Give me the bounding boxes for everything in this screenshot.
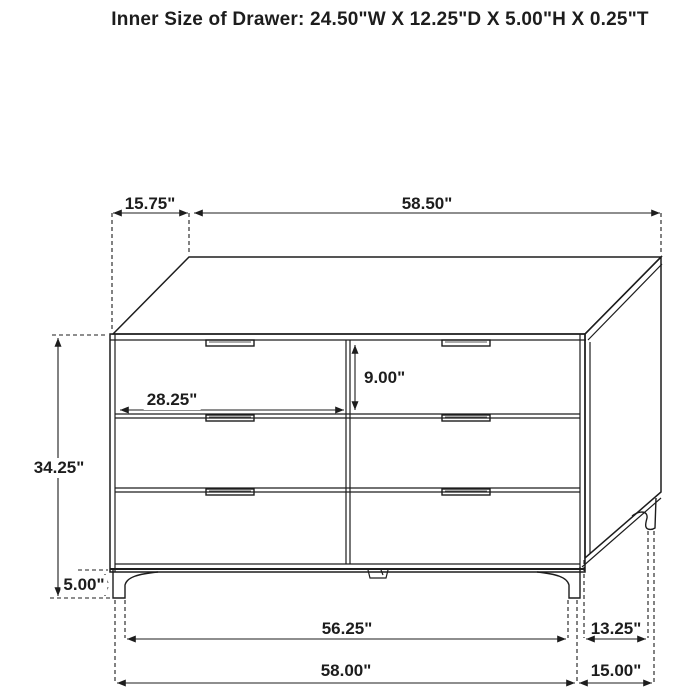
drawer-handle bbox=[206, 340, 254, 346]
rear-right-leg bbox=[632, 498, 656, 529]
dim-label-overall-height: 34.25" bbox=[31, 458, 88, 478]
drawer-handle bbox=[442, 340, 490, 346]
page-title: Inner Size of Drawer: 24.50"W X 12.25"D … bbox=[111, 9, 648, 31]
dresser-line-drawing bbox=[0, 0, 700, 700]
center-glide bbox=[368, 570, 388, 578]
dim-label-overall-width: 58.00" bbox=[321, 661, 372, 681]
dim-label-drawer-width: 28.25" bbox=[144, 390, 201, 410]
dresser-top-surface bbox=[110, 257, 662, 340]
dim-label-side-leg-span: 13.25" bbox=[591, 619, 642, 639]
dimension-diagram-page: Inner Size of Drawer: 24.50"W X 12.25"D … bbox=[0, 0, 700, 700]
dim-label-front-leg-span: 56.25" bbox=[322, 619, 373, 639]
extension-lines bbox=[50, 213, 661, 682]
dresser-legs bbox=[113, 498, 656, 598]
dim-label-top-width: 58.50" bbox=[402, 194, 453, 214]
dim-label-overall-depth: 15.00" bbox=[591, 661, 642, 681]
dresser-side-panel bbox=[582, 257, 661, 567]
dim-label-leg-height: 5.00" bbox=[60, 575, 107, 595]
dimension-arrow-lines bbox=[58, 213, 660, 683]
dresser-front-face bbox=[110, 334, 585, 572]
dim-label-top-depth: 15.75" bbox=[125, 194, 176, 214]
dresser-cabinet bbox=[110, 257, 662, 598]
dim-label-drawer-height: 9.00" bbox=[361, 368, 408, 388]
dimension-linework bbox=[50, 213, 661, 683]
